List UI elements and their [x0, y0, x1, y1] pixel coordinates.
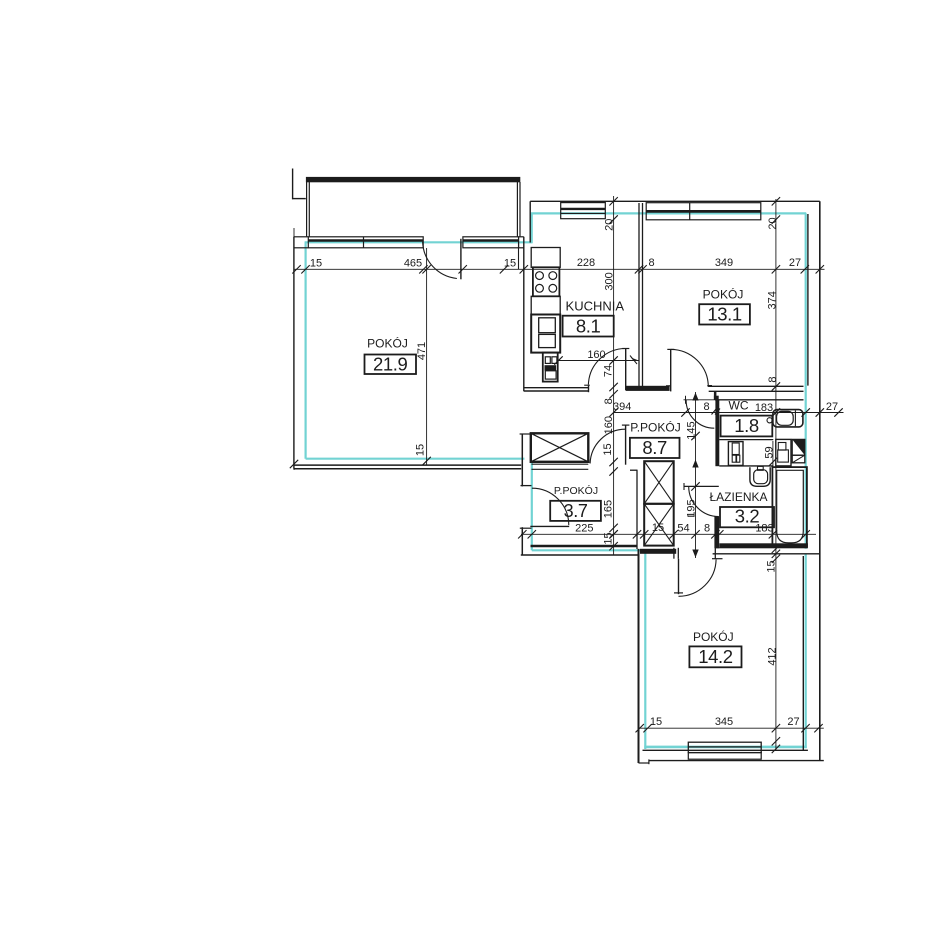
svg-text:1.8: 1.8 — [734, 415, 759, 436]
svg-text:3.2: 3.2 — [735, 506, 760, 527]
svg-text:POKÓJ: POKÓJ — [367, 335, 408, 350]
svg-text:15: 15 — [652, 522, 664, 534]
svg-text:15: 15 — [650, 716, 662, 728]
svg-text:74: 74 — [603, 365, 615, 377]
svg-text:8.7: 8.7 — [642, 437, 667, 458]
svg-text:ŁAZIENKA: ŁAZIENKA — [709, 490, 767, 504]
svg-text:8: 8 — [704, 523, 710, 535]
svg-text:KUCHNIA: KUCHNIA — [566, 298, 625, 313]
svg-text:8.1: 8.1 — [576, 315, 601, 336]
svg-text:15: 15 — [415, 444, 427, 456]
svg-text:P.POKÓJ: P.POKÓJ — [554, 484, 598, 497]
svg-text:183: 183 — [755, 402, 773, 414]
svg-text:14.2: 14.2 — [698, 646, 733, 667]
svg-text:394: 394 — [613, 401, 631, 413]
svg-text:160: 160 — [603, 416, 615, 434]
svg-text:27: 27 — [787, 716, 799, 728]
svg-text:59: 59 — [764, 446, 776, 458]
svg-text:P.POKÓJ: P.POKÓJ — [630, 420, 680, 435]
svg-text:POKÓJ: POKÓJ — [703, 286, 744, 301]
svg-text:15: 15 — [310, 257, 322, 269]
svg-text:20: 20 — [604, 219, 616, 231]
svg-text:21.9: 21.9 — [373, 353, 408, 374]
svg-text:27: 27 — [789, 257, 801, 269]
svg-text:15: 15 — [504, 257, 516, 269]
svg-text:165: 165 — [603, 500, 615, 518]
svg-text:8: 8 — [648, 257, 654, 269]
svg-text:8: 8 — [703, 401, 709, 413]
svg-text:160: 160 — [587, 349, 605, 361]
svg-text:225: 225 — [575, 522, 593, 534]
svg-text:WC: WC — [729, 399, 749, 413]
svg-text:300: 300 — [603, 272, 615, 290]
svg-text:349: 349 — [715, 257, 733, 269]
svg-text:15: 15 — [766, 560, 778, 572]
svg-text:8: 8 — [767, 376, 779, 382]
svg-text:195: 195 — [685, 499, 697, 517]
svg-text:3.7: 3.7 — [564, 501, 588, 521]
svg-text:374: 374 — [767, 291, 779, 309]
svg-text:POKÓJ: POKÓJ — [693, 629, 734, 644]
svg-text:15: 15 — [602, 443, 614, 455]
svg-text:412: 412 — [766, 647, 778, 665]
svg-text:471: 471 — [416, 342, 428, 360]
svg-text:465: 465 — [404, 257, 422, 269]
svg-text:13.1: 13.1 — [707, 304, 742, 325]
svg-text:54: 54 — [677, 522, 689, 534]
svg-text:27: 27 — [826, 401, 838, 413]
svg-text:228: 228 — [577, 257, 595, 269]
svg-text:20: 20 — [767, 217, 779, 229]
svg-text:345: 345 — [715, 716, 733, 728]
svg-text:145: 145 — [686, 421, 698, 439]
